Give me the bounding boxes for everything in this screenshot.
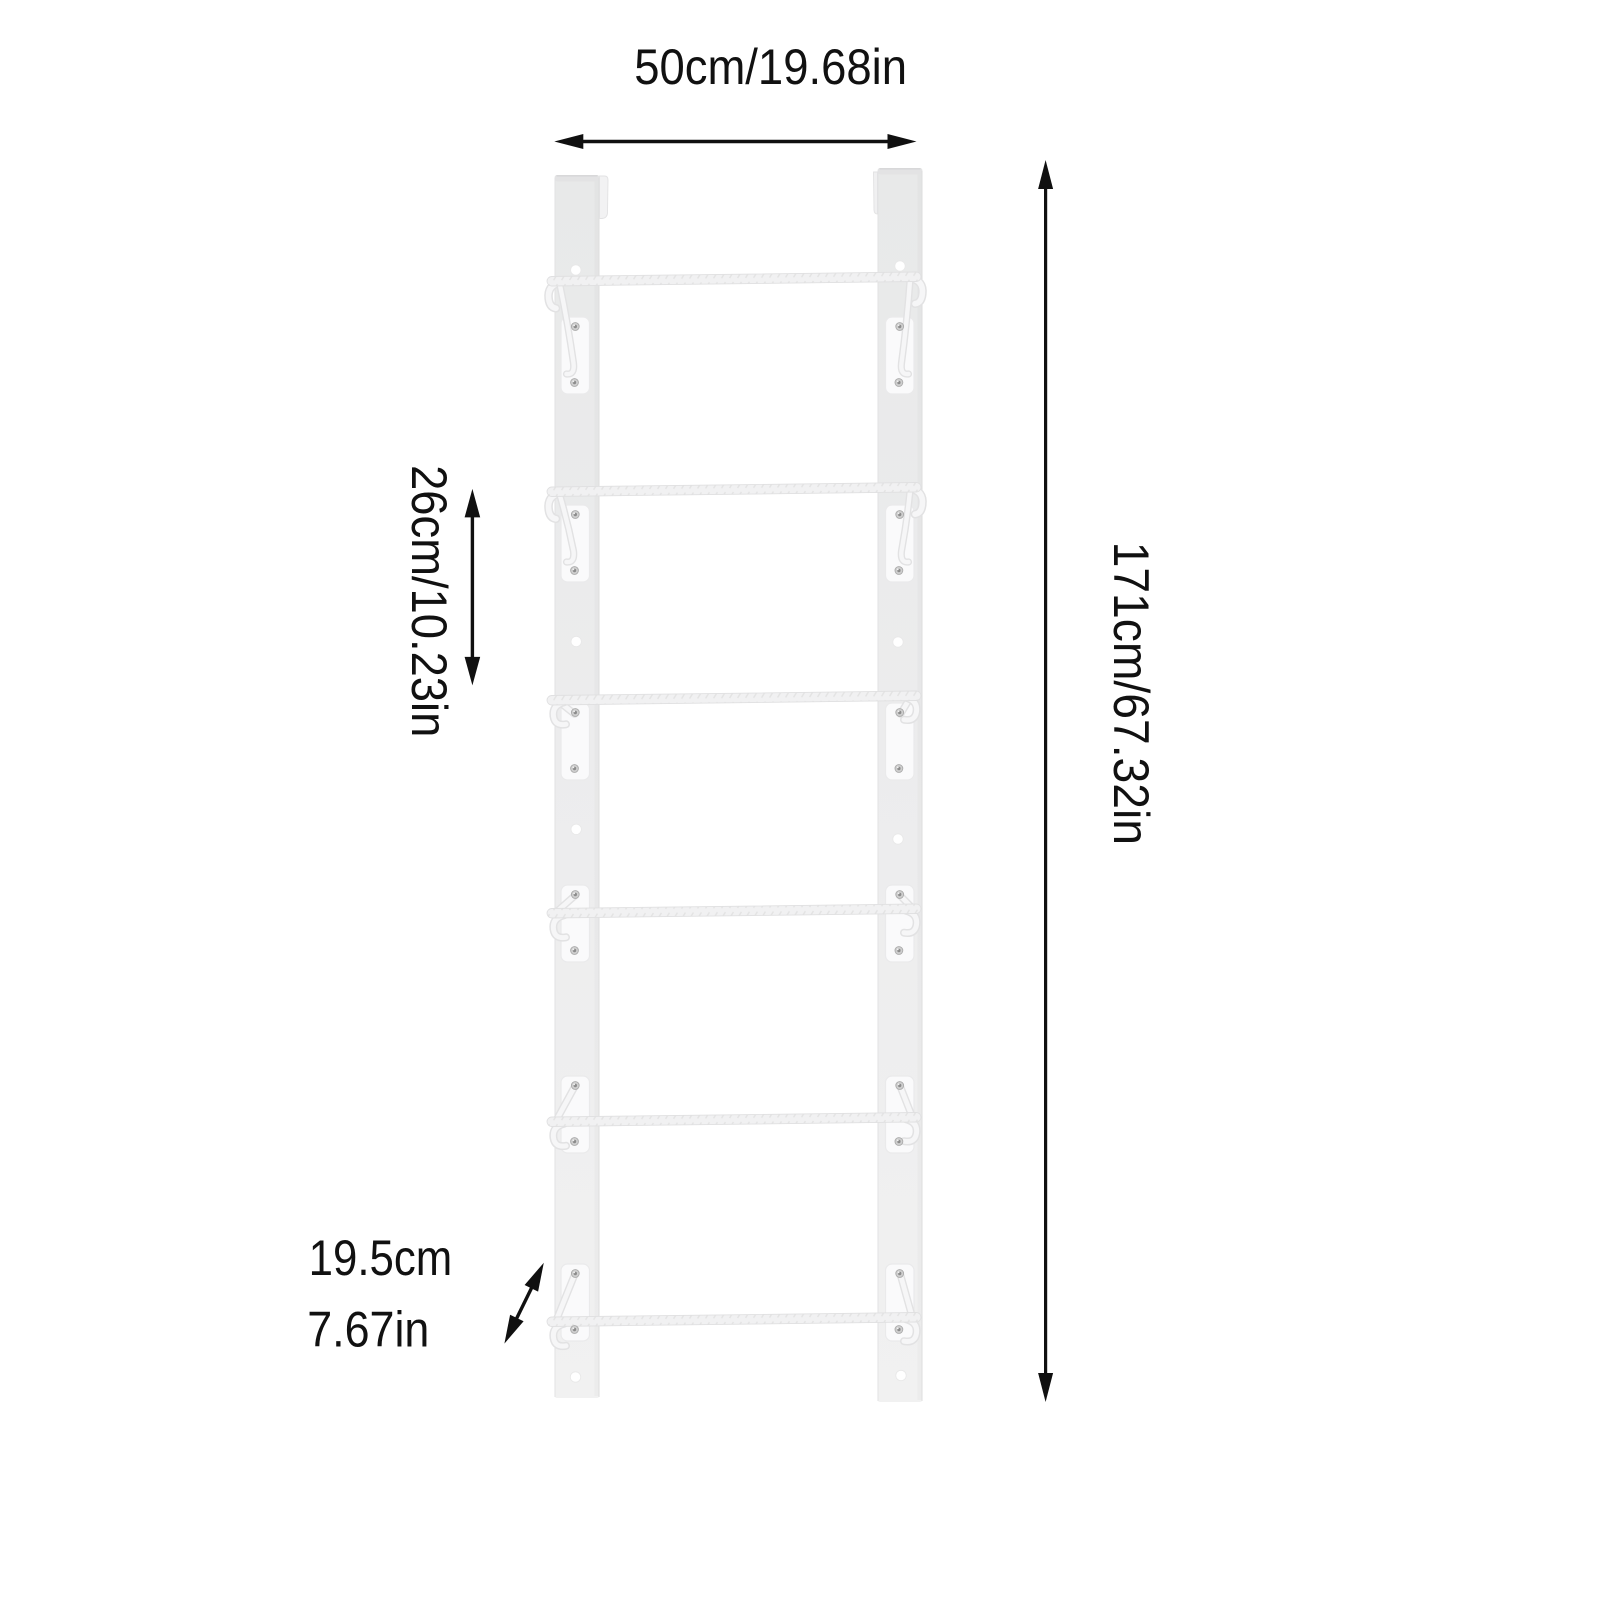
svg-text:26cm/10.23in: 26cm/10.23in	[400, 465, 456, 737]
svg-text:50cm/19.68in: 50cm/19.68in	[634, 40, 907, 95]
svg-text:171cm/67.32in: 171cm/67.32in	[1103, 542, 1159, 845]
svg-text:19.5cm: 19.5cm	[309, 1229, 453, 1285]
svg-text:7.67in: 7.67in	[307, 1302, 429, 1358]
